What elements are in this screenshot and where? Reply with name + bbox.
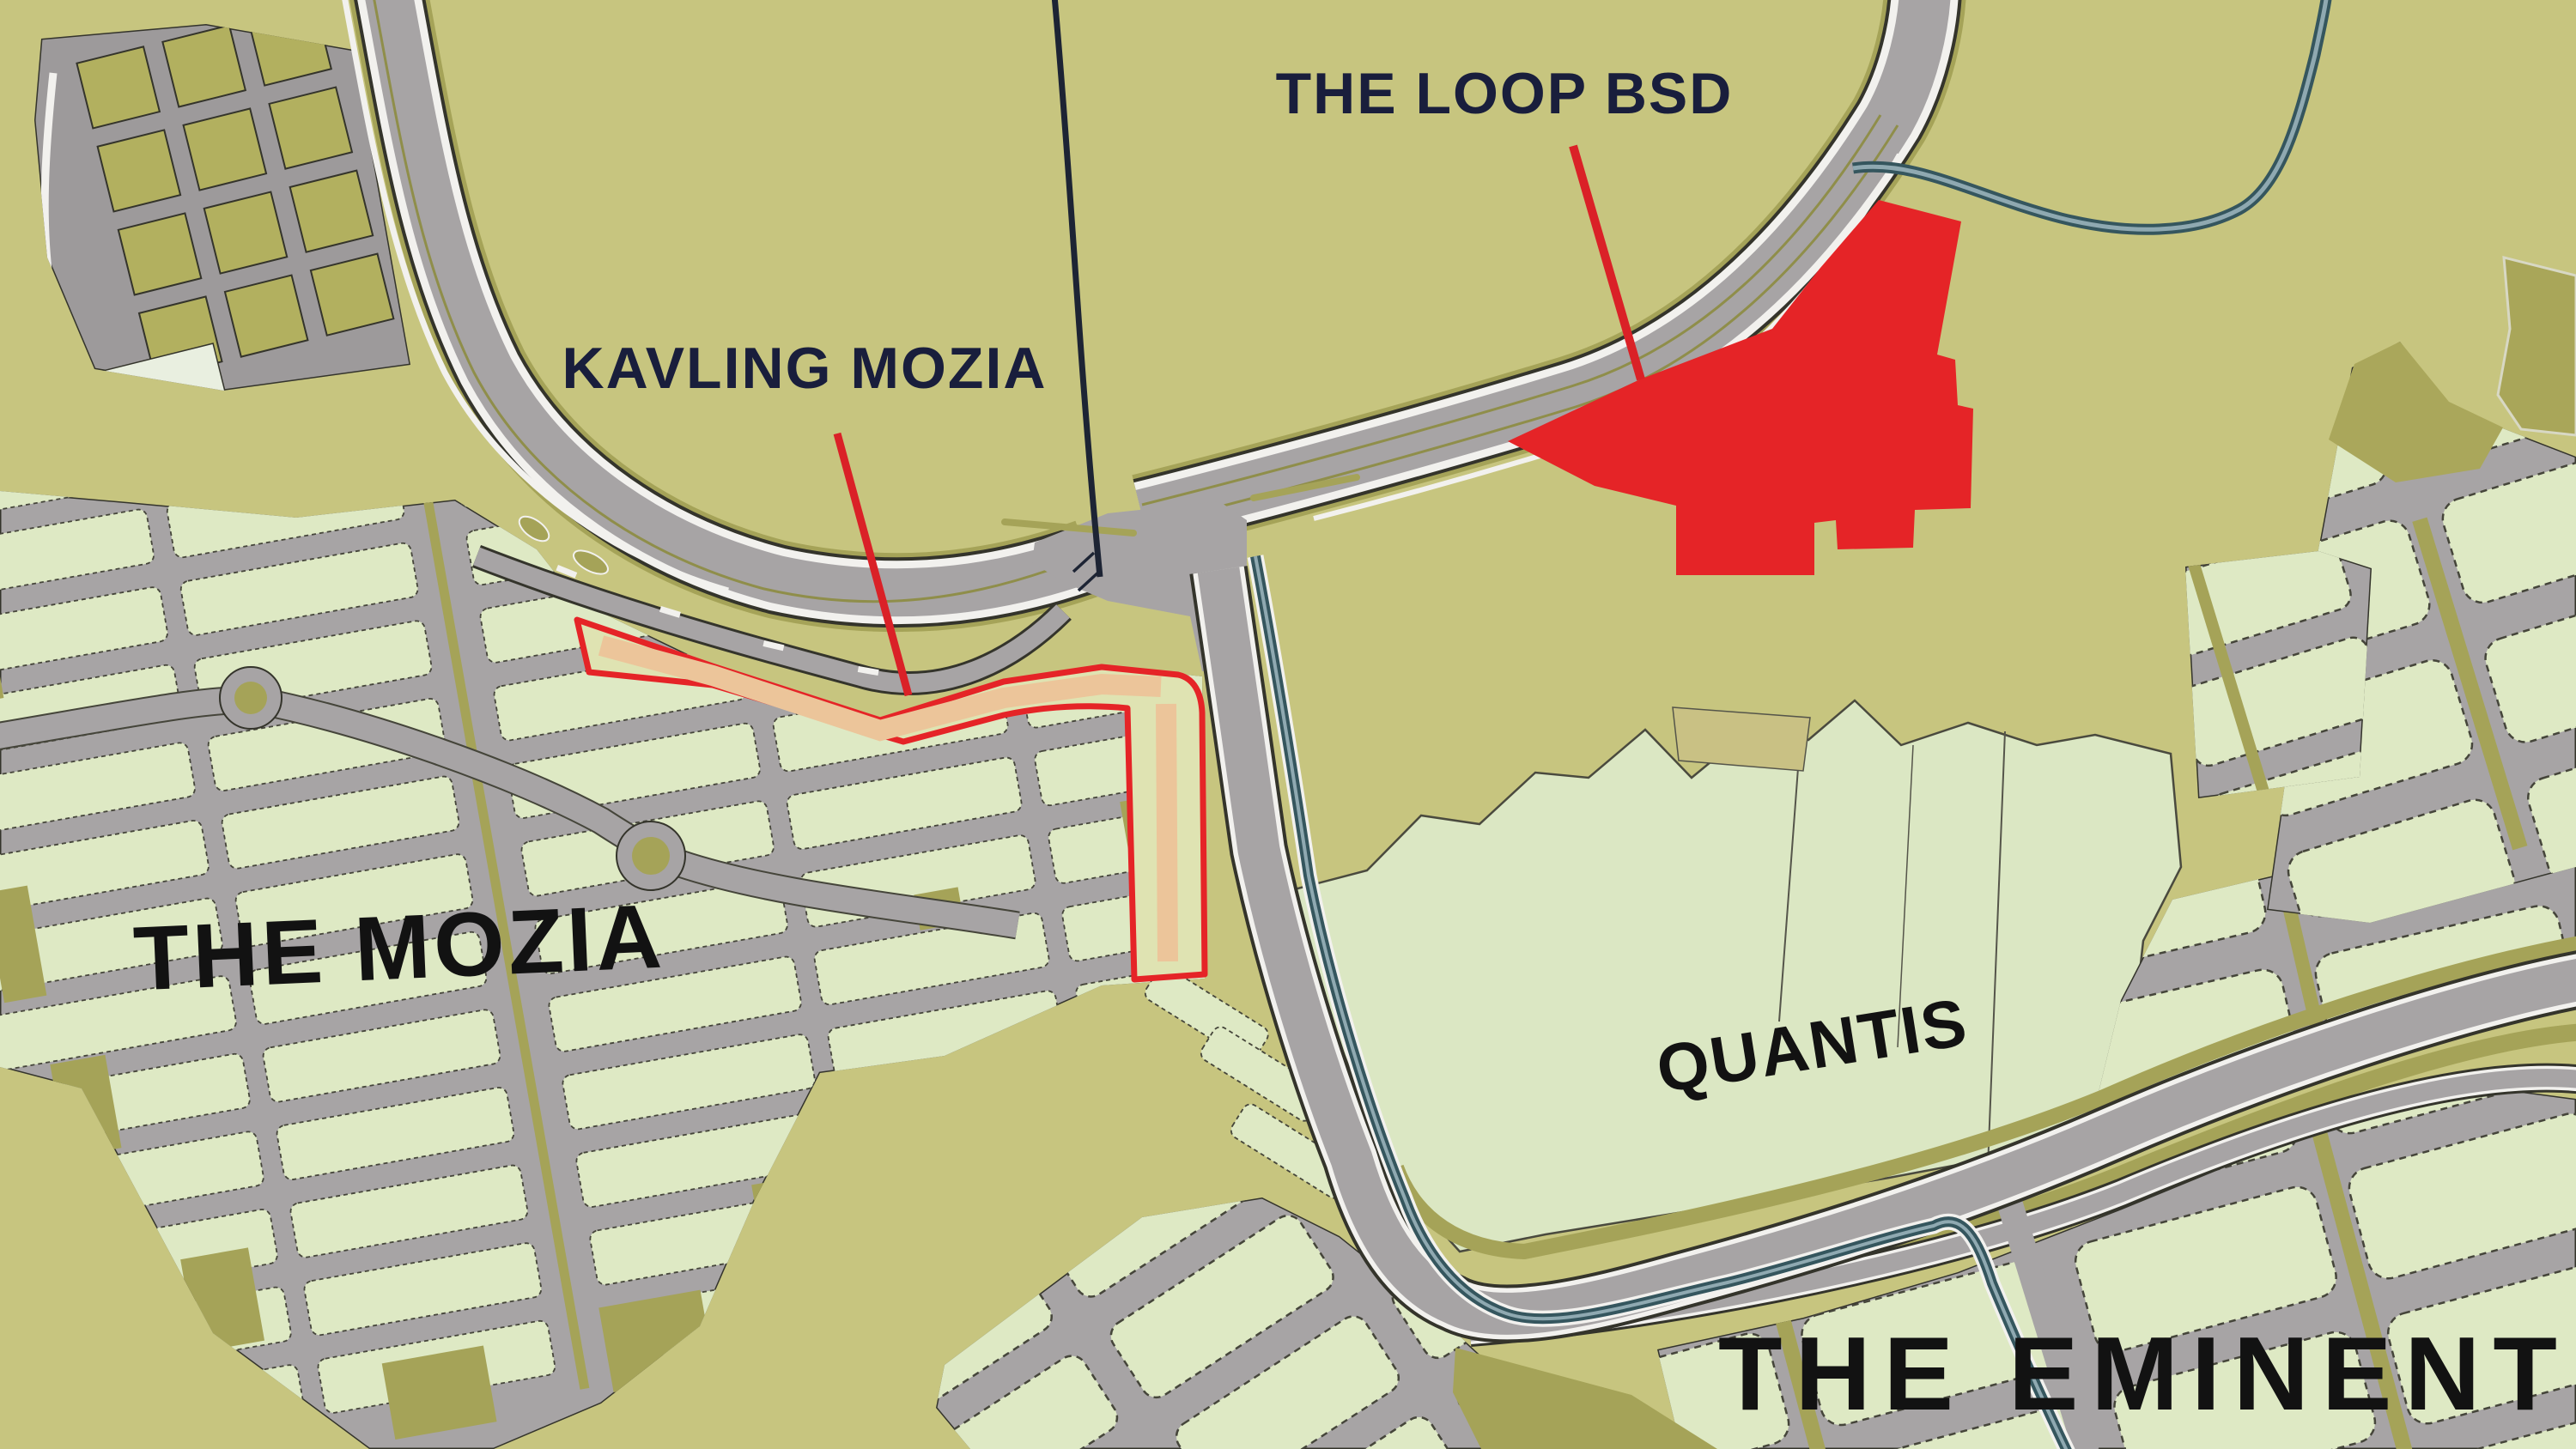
svg-text:THE EMINENT: THE EMINENT [1718,1315,2570,1432]
svg-text:THE LOOP BSD: THE LOOP BSD [1276,61,1734,126]
svg-text:KAVLING MOZIA: KAVLING MOZIA [562,336,1048,401]
